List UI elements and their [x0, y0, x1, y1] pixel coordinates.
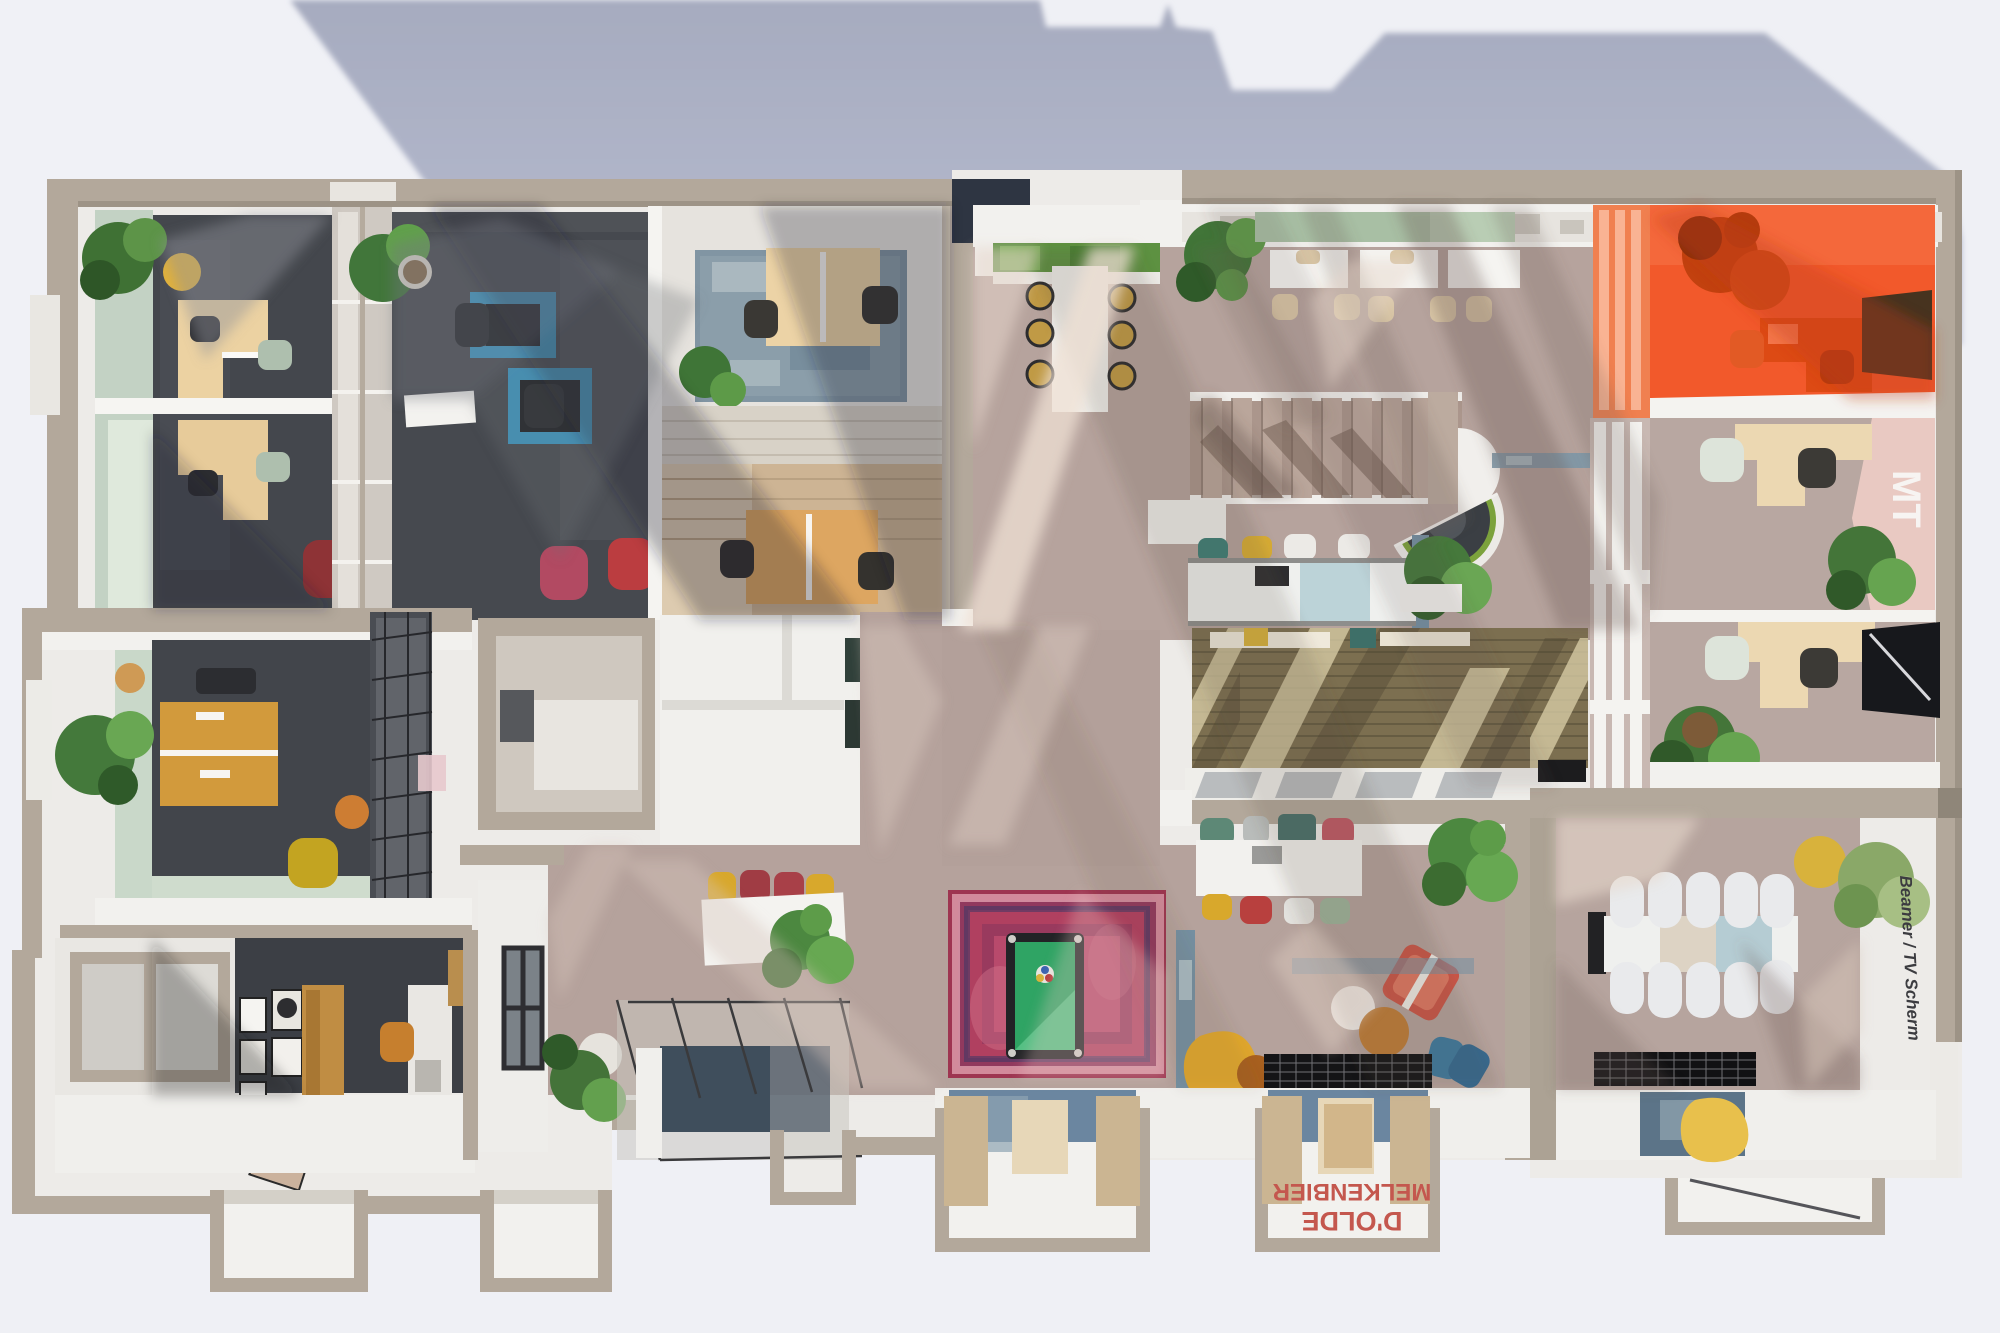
svg-text:D'OLDE: D'OLDE	[1302, 1206, 1403, 1236]
svg-text:MT: MT	[1884, 470, 1928, 528]
svg-text:MELKENBIER: MELKENBIER	[1273, 1178, 1432, 1205]
